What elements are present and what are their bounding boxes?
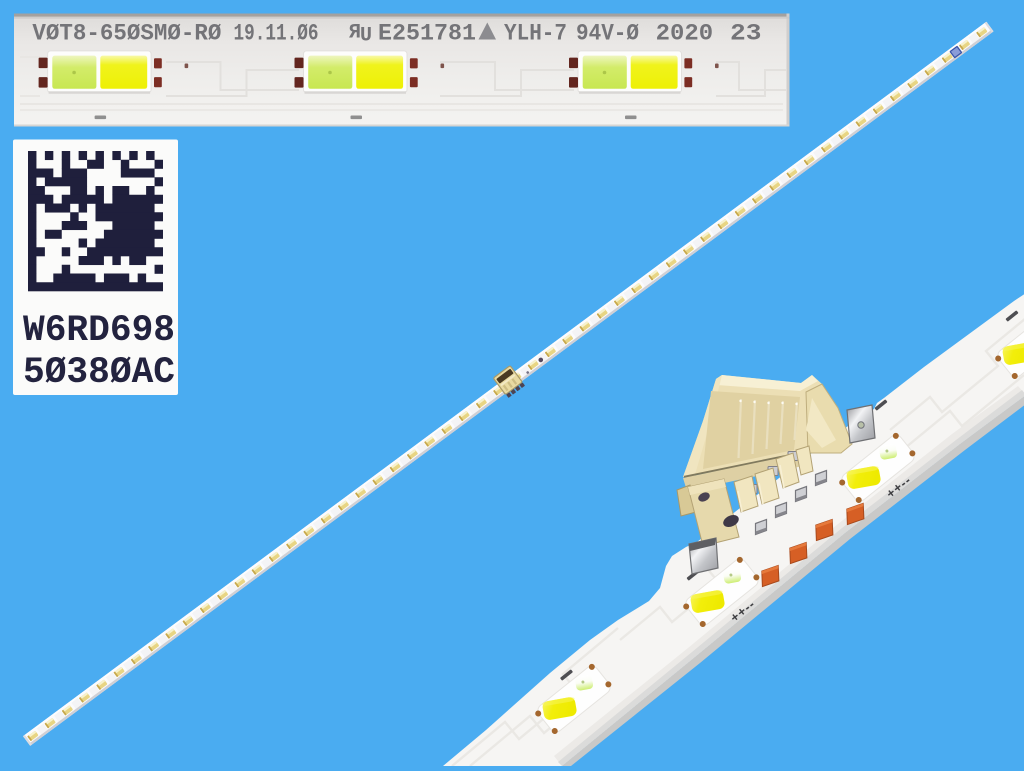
svg-text:19.11.Ø6: 19.11.Ø6 [234,21,319,48]
svg-text:W6RD698: W6RD698 [23,310,175,352]
svg-text:5Ø38ØAC: 5Ø38ØAC [23,352,175,394]
svg-text:94V-Ø: 94V-Ø [576,21,639,48]
svg-text:VØT8-65ØSMØ-RØ: VØT8-65ØSMØ-RØ [32,21,221,48]
svg-text:YLH-7: YLH-7 [504,21,567,48]
svg-text:E251781: E251781 [378,21,476,48]
svg-text:23: 23 [730,21,762,48]
svg-text:2020: 2020 [656,21,714,48]
svg-text:U: U [360,25,372,48]
